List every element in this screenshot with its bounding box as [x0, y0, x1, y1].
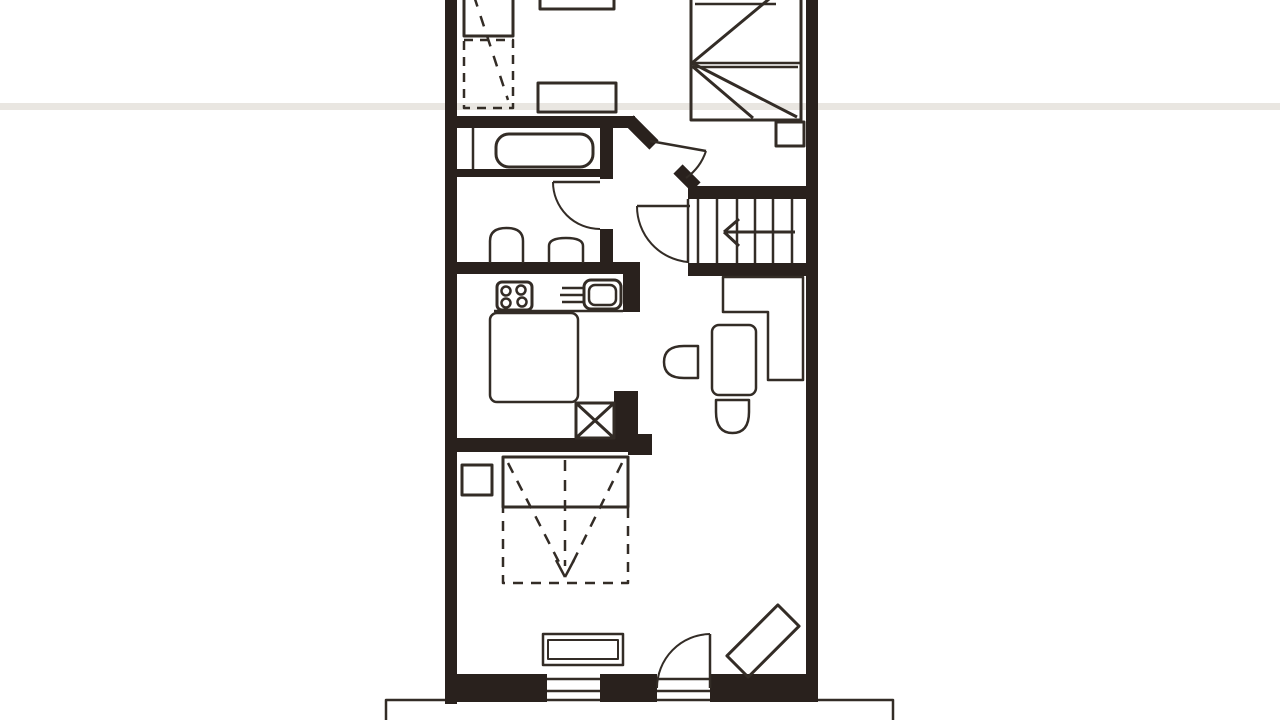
wc-sink	[549, 238, 583, 263]
double-bed-diag-inner	[692, 66, 753, 118]
left-wall	[445, 0, 457, 704]
floorplan-drawing	[0, 0, 1280, 720]
dining-chair-bottom	[716, 400, 749, 433]
stove-burner-3	[502, 299, 511, 308]
wc-kitchen-wall	[445, 262, 640, 274]
shaft-side-wall	[614, 391, 638, 438]
lounge-chair-diagonal	[727, 605, 799, 677]
bedroom-door-leaf	[650, 141, 706, 151]
sideboard	[543, 634, 623, 665]
floorplan-page	[0, 0, 1280, 720]
bathroom-side-wall-lower	[600, 229, 613, 264]
corner-bench	[723, 277, 803, 380]
dining-table	[712, 325, 756, 395]
tub-base-wall	[455, 169, 601, 177]
double-bed-diag-upper	[692, 0, 798, 63]
bottom-wall-right	[710, 674, 808, 702]
bathroom-side-wall-upper	[600, 122, 613, 179]
kitchen-sink-basin	[589, 285, 616, 305]
tl-top-table	[540, 0, 614, 9]
sideboard-inner	[548, 640, 618, 659]
bottom-wall-left	[447, 674, 547, 702]
bottom-wall-mid	[600, 674, 657, 702]
nightstand-top-bedroom	[776, 122, 804, 146]
dining-chair-left	[664, 346, 698, 378]
stove-burner-4	[518, 298, 527, 307]
tl-slope-dash-line	[474, 0, 508, 100]
kitchen-table	[490, 313, 578, 402]
stove-burner-2	[517, 286, 526, 295]
tl-cabinet	[464, 0, 513, 36]
balcony-outline	[386, 700, 893, 720]
kitchen-bottom-wall	[445, 438, 645, 452]
wc-door-arc	[553, 182, 600, 229]
stairwell-top-wall	[688, 186, 818, 199]
toilet	[490, 228, 523, 263]
scan-artifact-band	[0, 103, 1280, 110]
slope-arrow-barb-right	[565, 560, 574, 577]
tl-cabinet-dashed	[464, 40, 513, 108]
slope-dash-v-right	[570, 463, 622, 568]
bathtub	[496, 134, 593, 167]
right-wall	[806, 0, 818, 702]
nightstand-lower-bedroom	[462, 465, 492, 495]
stove-burner-1	[502, 287, 511, 296]
kitchen-right-wall-post	[623, 262, 640, 312]
slope-arrow-barb-left	[556, 560, 565, 577]
stairs-door-arc	[637, 206, 688, 262]
stairwell-bottom-wall	[688, 263, 818, 276]
slope-dash-v-left	[508, 463, 562, 568]
